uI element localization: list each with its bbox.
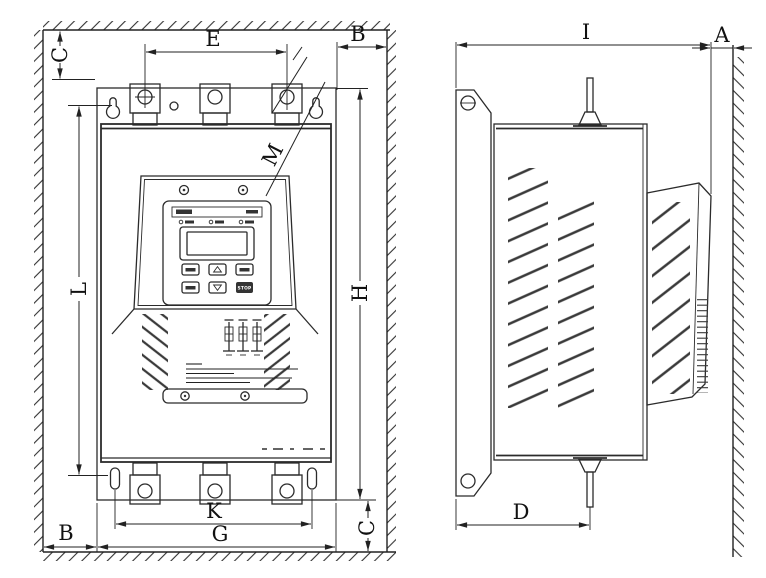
front-view: STOP: [34, 21, 396, 561]
dim-label-l: L: [67, 282, 91, 296]
cover-screw-right: [239, 186, 248, 195]
dim-label-c-bottom: C: [355, 520, 379, 536]
dim-b-top: B: [337, 22, 386, 90]
dim-label-c-top: C: [48, 47, 72, 63]
terminal-symbol: [237, 320, 249, 355]
dim-a: A: [692, 23, 752, 48]
up-button: [209, 264, 226, 275]
led-indicators: [179, 220, 254, 224]
bottom-screw: [573, 458, 607, 507]
side-dimensions: I A D: [456, 20, 752, 530]
side-vent-column-right: [558, 200, 594, 408]
bottom-wall-hatch: [43, 552, 396, 561]
brand-text-block: [176, 210, 192, 215]
dim-h: H: [336, 89, 376, 501]
stop-button-label: STOP: [238, 286, 252, 292]
keypad-buttons: STOP: [182, 264, 253, 293]
down-arrow-icon: [214, 285, 222, 290]
dim-label-h: H: [348, 284, 372, 302]
side-wall: [733, 45, 744, 557]
right-vent-bank: [264, 314, 290, 390]
slot-bottom-left: [111, 468, 120, 489]
top-mounting-tabs: [130, 84, 302, 125]
side-wall-hatch: [733, 57, 744, 557]
dim-label-d: D: [513, 500, 530, 524]
small-hole: [170, 102, 178, 110]
dim-b-bottom: B: [44, 503, 97, 552]
terminal-symbols: [223, 320, 263, 355]
back-flange-plate: [97, 88, 336, 500]
flange-hole-bottom: [461, 474, 475, 488]
tab-hole: [208, 484, 222, 498]
keyhole-slot-top-left: [107, 98, 120, 119]
dim-label-e: E: [205, 27, 220, 51]
model-text-block: [246, 210, 258, 214]
led-icon: [209, 220, 213, 224]
drawing-canvas: STOP: [0, 0, 766, 578]
dim-label-g: G: [212, 522, 229, 546]
keypad-cover: [134, 176, 296, 309]
cover-shoulder-right: [296, 309, 318, 334]
top-screw: [573, 78, 607, 126]
strip-screw-left: [181, 392, 189, 400]
up-arrow-icon: [214, 267, 222, 272]
dimension-drawing: STOP: [0, 0, 766, 578]
dim-label-a: A: [713, 23, 730, 47]
terminal-symbol: [251, 320, 263, 355]
tab-hole: [138, 484, 152, 498]
bottom-mounting-tabs: [130, 463, 302, 504]
strip-screw-right: [241, 392, 249, 400]
front-cover-bulge: [647, 183, 711, 405]
dim-l: L: [67, 106, 112, 476]
down-button: [209, 282, 226, 293]
tab-hole: [280, 484, 294, 498]
dim-d: D: [456, 499, 590, 530]
slot-bottom-right: [308, 468, 317, 489]
dim-c-bottom: C: [355, 501, 379, 551]
display-screen: [187, 232, 247, 255]
led-icon: [239, 220, 243, 224]
dim-label-b-top: B: [350, 22, 365, 46]
dim-e: E: [135, 27, 287, 110]
device-front: STOP: [97, 84, 336, 504]
right-wall-hatch: [387, 30, 396, 552]
cover-screw-left: [180, 186, 189, 195]
dim-c-top: C: [48, 32, 95, 80]
cover-shoulder-left: [112, 309, 134, 334]
dim-label-k: K: [206, 499, 222, 523]
bulge-vents: [652, 202, 690, 394]
side-view: I A D: [456, 20, 752, 557]
keypad-panel: STOP: [163, 201, 271, 305]
dim-label-m: M: [257, 140, 288, 170]
side-vent-column-left: [508, 168, 548, 408]
tab-hole: [208, 90, 222, 104]
side-flange-plate: [456, 90, 491, 496]
flange-hole-top: [460, 96, 476, 110]
dim-label-i: I: [582, 20, 590, 44]
bulge-face-ticks: [697, 299, 708, 393]
terminal-symbol: [223, 320, 235, 355]
device-side: [456, 78, 711, 507]
dim-label-b-bottom: B: [58, 521, 73, 545]
led-icon: [179, 220, 183, 224]
dim-m: M: [257, 47, 325, 196]
left-wall-hatch: [34, 30, 43, 552]
left-vent-bank: [142, 314, 168, 390]
